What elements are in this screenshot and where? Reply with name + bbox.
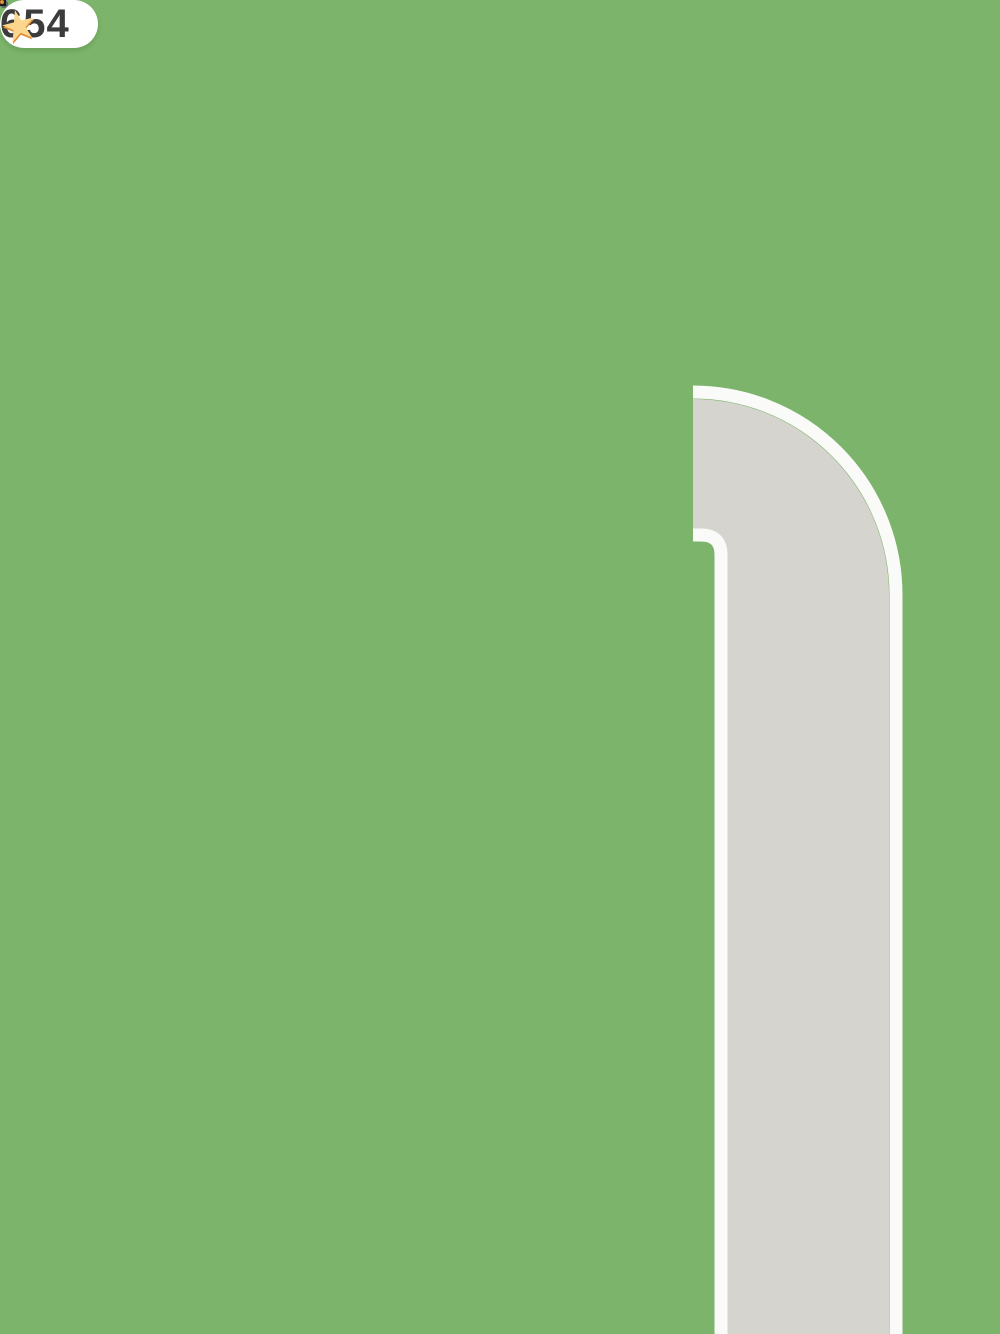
game-viewport[interactable]: 654 ★ xyxy=(0,0,1000,1334)
road-right xyxy=(0,0,1000,1334)
road-right-inner-line xyxy=(693,535,721,1334)
